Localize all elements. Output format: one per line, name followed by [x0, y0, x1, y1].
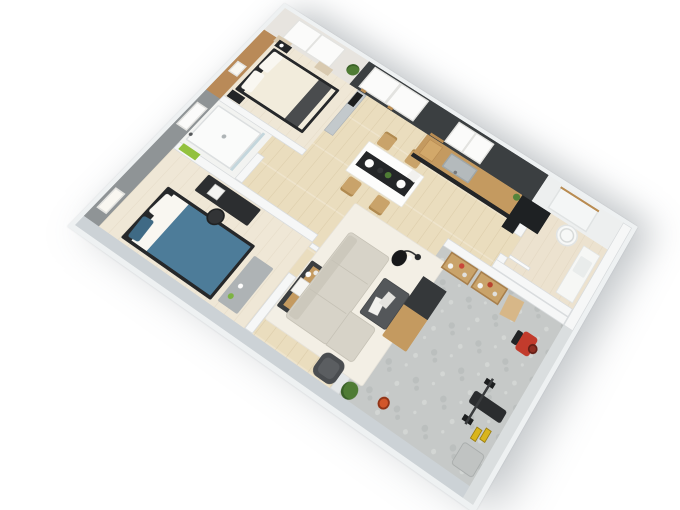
- floorplan-render: [0, 0, 680, 510]
- apartment-plan: [75, 8, 632, 505]
